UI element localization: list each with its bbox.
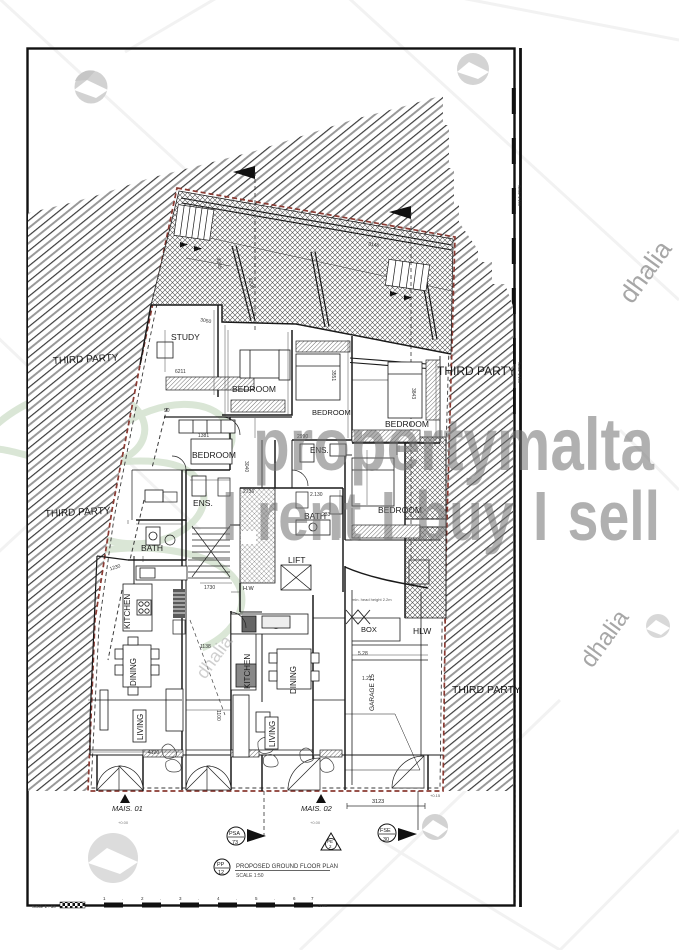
svg-text:.: .	[198, 896, 199, 901]
svg-text:Scale 1:100: Scale 1:100	[517, 185, 522, 207]
svg-text:+0.00: +0.00	[310, 820, 321, 825]
svg-text:1: 1	[103, 896, 106, 901]
svg-text:10 m: 10 m	[318, 903, 328, 908]
svg-text:PP: PP	[217, 862, 225, 868]
svg-text:BEDROOM: BEDROOM	[232, 384, 276, 394]
svg-text:Scale 1:100: Scale 1:100	[517, 362, 522, 384]
svg-text:BOX: BOX	[361, 625, 377, 634]
svg-text:PROPOSED GROUND FLOOR PLAN: PROPOSED GROUND FLOOR PLAN	[236, 864, 338, 870]
svg-text:H.W: H.W	[243, 586, 255, 592]
svg-text:1230: 1230	[109, 563, 122, 572]
svg-text:1730: 1730	[204, 585, 215, 591]
svg-text:+0.15: +0.15	[430, 793, 441, 798]
svg-text:73: 73	[232, 840, 238, 846]
svg-text:12: 12	[218, 870, 224, 876]
svg-text:30: 30	[383, 837, 389, 843]
svg-text:.: .	[160, 896, 161, 901]
svg-text:4: 4	[217, 896, 220, 901]
svg-text:PSA: PSA	[229, 831, 240, 837]
svg-text:min. head height 2.2m: min. head height 2.2m	[352, 597, 392, 602]
svg-text:6: 6	[293, 896, 296, 901]
svg-text:KITCHEN: KITCHEN	[123, 594, 132, 629]
svg-text:MAIS. 01: MAIS. 01	[112, 804, 143, 813]
svg-text:3050: 3050	[200, 317, 212, 325]
svg-text:FSE: FSE	[380, 828, 391, 834]
svg-text:DINING: DINING	[129, 658, 138, 686]
svg-text:3123: 3123	[372, 799, 384, 805]
svg-text:1100: 1100	[215, 710, 221, 721]
svg-text:Scale 1 : 50: Scale 1 : 50	[32, 904, 56, 909]
svg-text:+0.00: +0.00	[118, 820, 129, 825]
svg-text:3843: 3843	[410, 388, 416, 399]
svg-text:STUDY: STUDY	[171, 332, 200, 342]
svg-text:LIVING: LIVING	[268, 721, 277, 747]
svg-text:3551: 3551	[330, 370, 336, 381]
svg-text:dhalia: dhalia	[575, 604, 635, 672]
svg-text:HLW: HLW	[413, 626, 431, 636]
svg-text:3: 3	[179, 896, 182, 901]
svg-text:SCALE 1:50: SCALE 1:50	[236, 873, 264, 879]
svg-text:.: .	[236, 896, 237, 901]
svg-text:KITCHEN: KITCHEN	[243, 654, 252, 689]
svg-text:BATH: BATH	[141, 543, 163, 553]
svg-text:2: 2	[141, 896, 144, 901]
svg-text:I rent I buy I sell: I rent I buy I sell	[222, 477, 660, 555]
svg-text:BEDROOM: BEDROOM	[192, 450, 236, 460]
svg-text:THIRD PARTY: THIRD PARTY	[437, 364, 516, 378]
svg-text:.: .	[274, 896, 275, 901]
svg-text:DINING: DINING	[289, 666, 298, 694]
svg-text:1381: 1381	[198, 433, 209, 439]
svg-text:dhalia: dhalia	[613, 234, 678, 308]
svg-text:THIRD PARTY: THIRD PARTY	[452, 684, 521, 696]
svg-text:MAIS. 02: MAIS. 02	[301, 804, 333, 813]
svg-text:ENS.: ENS.	[193, 498, 213, 508]
svg-text:propertymalta: propertymalta	[253, 403, 655, 486]
svg-text:LIFT: LIFT	[288, 555, 305, 565]
svg-text:5.28: 5.28	[358, 651, 368, 657]
svg-text:1.22: 1.22	[362, 676, 372, 682]
svg-text:90: 90	[164, 408, 170, 414]
svg-text:4120: 4120	[148, 750, 159, 756]
svg-text:6211: 6211	[175, 369, 186, 375]
svg-text:5: 5	[255, 896, 258, 901]
svg-text:3040: 3040	[243, 461, 249, 472]
svg-text:LIVING: LIVING	[136, 714, 145, 740]
svg-text:.: .	[122, 896, 123, 901]
svg-text:7: 7	[311, 896, 314, 901]
